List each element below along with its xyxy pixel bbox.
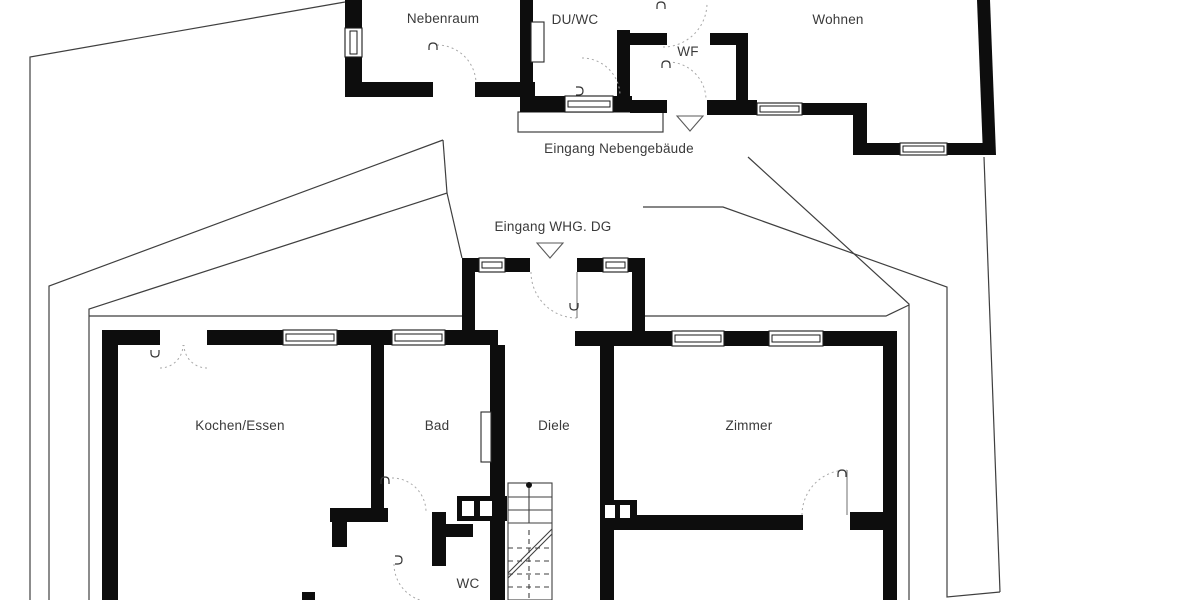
shower-fixture <box>531 22 544 62</box>
room-label-zimmer: Zimmer <box>726 418 773 433</box>
floorplan-canvas: Nebenraum DU/WC WF Wohnen Eingang Nebeng… <box>0 0 1200 600</box>
room-label-diele: Diele <box>538 418 570 433</box>
floorplan-drawing: Nebenraum DU/WC WF Wohnen Eingang Nebeng… <box>0 0 1200 600</box>
entrance-platform <box>518 112 703 132</box>
room-label-wf: WF <box>677 44 698 59</box>
entrance-arrow-upper-icon <box>677 116 703 131</box>
room-label-wc: WC <box>457 576 480 591</box>
radiator-fixture <box>481 412 491 462</box>
entrance-label-whg-dg: Eingang WHG. DG <box>494 219 611 234</box>
room-label-nebenraum: Nebenraum <box>407 11 479 26</box>
room-label-bad: Bad <box>425 418 450 433</box>
room-label-kochen-essen: Kochen/Essen <box>195 418 284 433</box>
entrance-arrow-lower-icon <box>537 243 563 258</box>
windows <box>283 28 947 346</box>
staircase <box>508 482 552 600</box>
room-label-duwc: DU/WC <box>552 12 599 27</box>
room-label-wohnen: Wohnen <box>812 12 863 27</box>
entrance-label-nebengebaeude: Eingang Nebengebäude <box>544 141 694 156</box>
